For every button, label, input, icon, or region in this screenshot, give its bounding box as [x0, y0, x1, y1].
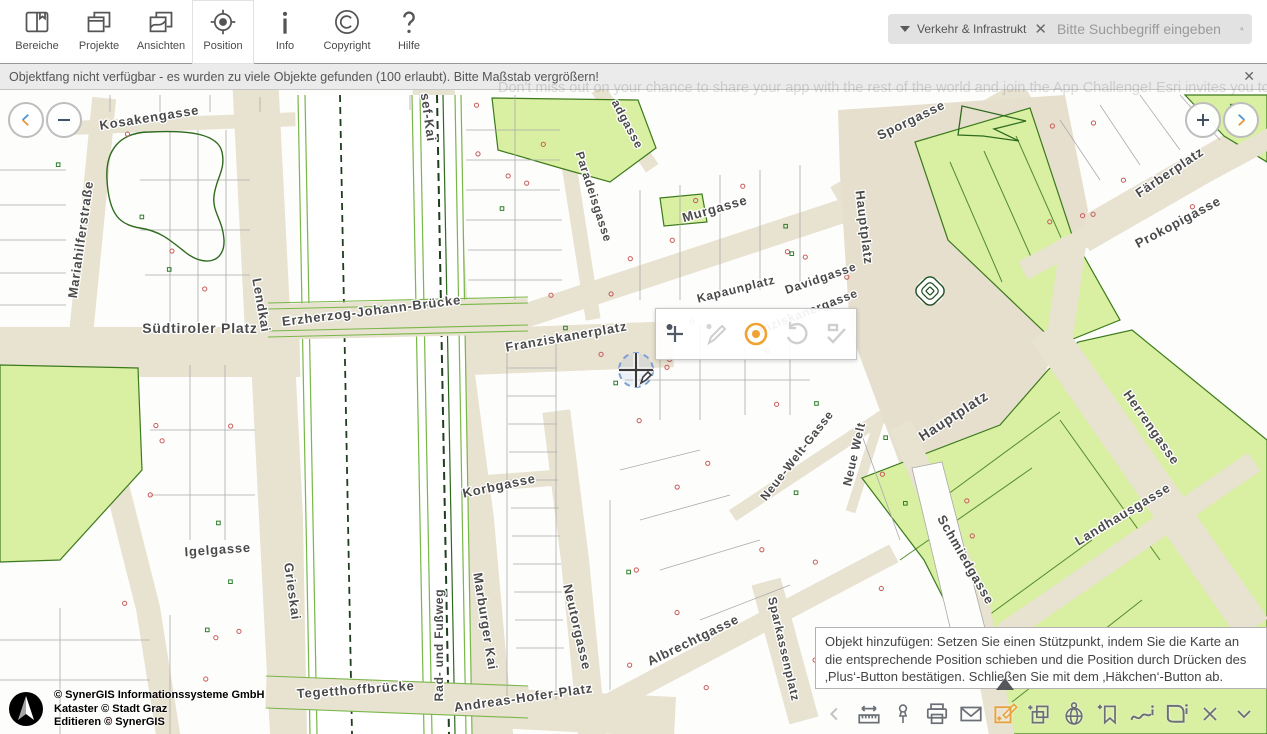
chevron-left-icon [17, 111, 35, 129]
print-icon[interactable] [922, 697, 952, 731]
mail-icon[interactable] [956, 697, 986, 731]
pencil-icon [697, 312, 735, 356]
toolbar-item-label: Position [203, 40, 242, 52]
history-forward-button[interactable] [1223, 102, 1259, 138]
pin-icon[interactable] [888, 697, 918, 731]
info-icon [271, 6, 299, 38]
bottom-toolbar [812, 694, 1267, 734]
globe-pin-icon[interactable] [1059, 697, 1089, 731]
toolbar-item-ansichten[interactable]: Ansichten [130, 0, 192, 64]
collapse-icon[interactable] [1229, 697, 1259, 731]
book-icon [23, 6, 51, 38]
toolbar-item-hilfe[interactable]: Hilfe [378, 0, 440, 64]
notification-bar: Objektfang nicht verfügbar - es wurden z… [0, 63, 1267, 90]
toolbar-item-position[interactable]: Position [192, 0, 254, 64]
toolbar-item-label: Projekte [79, 40, 119, 52]
attribution-line: Editieren © SynerGIS [54, 716, 264, 730]
chevron-left-icon[interactable] [820, 697, 850, 731]
help-tooltip-text: Objekt hinzufügen: Setzen Sie einen Stüt… [825, 634, 1246, 684]
copyright-icon [333, 6, 361, 38]
search-input[interactable] [1055, 20, 1240, 38]
record-point-icon[interactable] [737, 312, 775, 356]
map-canvas[interactable]: KosakengasseMariahilferstraßeLendkaisef-… [0, 0, 1267, 734]
close-icon[interactable]: ✕ [1231, 68, 1267, 85]
toolbar-item-info[interactable]: Info [254, 0, 316, 64]
toolbar-item-label: Ansichten [137, 40, 185, 52]
measure-icon[interactable] [854, 697, 884, 731]
area-info-icon[interactable] [1161, 697, 1191, 731]
minus-icon [55, 111, 73, 129]
edit-object-icon[interactable] [990, 697, 1020, 731]
finish-check-icon [817, 312, 855, 356]
search-category[interactable]: Verkehr & Infrastrukt [917, 22, 1026, 36]
crosshair-target-icon [209, 6, 237, 38]
app-window: KosakengasseMariahilferstraßeLendkaisef-… [0, 0, 1267, 734]
search-icon[interactable] [1240, 18, 1244, 40]
help-tooltip: Objekt hinzufügen: Setzen Sie einen Stüt… [815, 627, 1267, 689]
bookmark-add-icon[interactable] [1093, 697, 1123, 731]
toolbar-item-bereiche[interactable]: Bereiche [6, 0, 68, 64]
route-info-icon[interactable] [1127, 697, 1157, 731]
add-layers-icon[interactable] [1024, 697, 1054, 731]
question-icon [395, 6, 423, 38]
map-label: Rad- und Fußweg [432, 589, 446, 702]
plus-icon [1194, 111, 1212, 129]
close-icon[interactable] [1195, 697, 1225, 731]
zoom-out-button[interactable] [46, 102, 82, 138]
synergis-logo [8, 691, 44, 727]
map-label: Südtiroler Platz [142, 320, 257, 336]
attribution-line: Kataster © Stadt Graz [54, 703, 264, 717]
toolbar-item-label: Copyright [323, 40, 370, 52]
chevron-right-icon [1232, 111, 1250, 129]
undo-icon [777, 312, 815, 356]
edit-mini-toolbar [655, 308, 857, 360]
windows-stack-icon [85, 6, 113, 38]
map-attribution: © SynerGIS Informationssysteme GmbH Kata… [8, 689, 264, 730]
toolbar-item-label: Info [276, 40, 294, 52]
search-bar: Verkehr & Infrastrukt ✕ [888, 14, 1252, 44]
clear-search-icon[interactable]: ✕ [1034, 20, 1047, 38]
attribution-line: © SynerGIS Informationssysteme GmbH [54, 689, 264, 703]
history-back-button[interactable] [8, 102, 44, 138]
toolbar-item-copyright[interactable]: Copyright [316, 0, 378, 64]
zoom-in-button[interactable] [1185, 102, 1221, 138]
chevron-down-icon[interactable] [900, 26, 910, 32]
map-sheets-icon [147, 6, 175, 38]
toolbar-item-label: Bereiche [15, 40, 58, 52]
add-vertex-icon[interactable] [657, 312, 695, 356]
toolbar-item-label: Hilfe [398, 40, 420, 52]
notification-text: Objektfang nicht verfügbar - es wurden z… [0, 70, 1231, 84]
tooltip-pointer [996, 678, 1014, 690]
toolbar-item-projekte[interactable]: Projekte [68, 0, 130, 64]
